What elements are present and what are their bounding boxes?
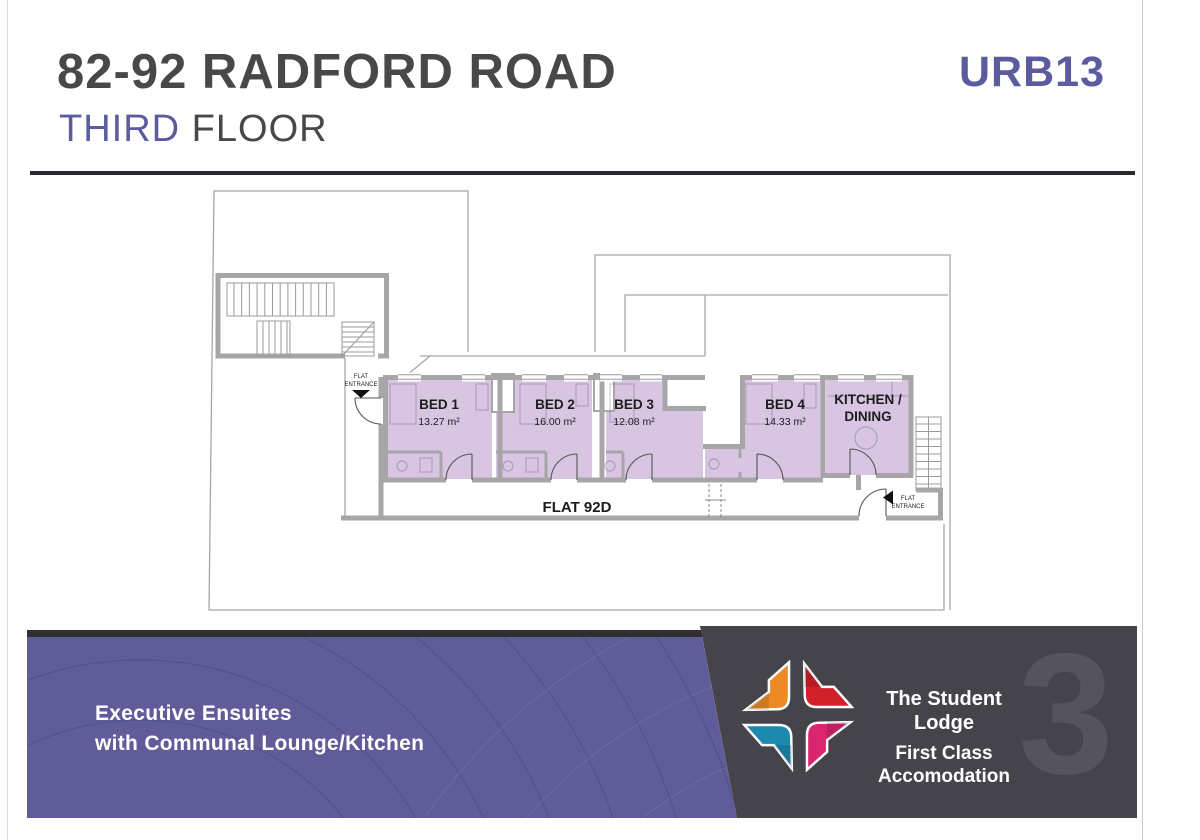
entrance-left-label: FLAT	[354, 374, 369, 380]
stairwell-right	[916, 417, 941, 490]
brand-text: The Student Lodge First Class Accomodati…	[858, 687, 1030, 788]
entrance-right-label: FLAT	[901, 496, 916, 502]
room-label-bed4: BED 4	[765, 397, 805, 412]
brand-tagline: First Class Accomodation	[858, 742, 1030, 788]
entrance-arrow-down-icon	[352, 390, 370, 398]
banner-line2: with Communal Lounge/Kitchen	[95, 729, 424, 759]
page-number: 3	[1018, 634, 1114, 794]
banner-line1: Executive Ensuites	[95, 699, 424, 729]
stairwell-left	[216, 273, 390, 359]
room-label-bed1: BED 1	[419, 397, 459, 412]
room-label-bed3: BED 3	[614, 397, 654, 412]
student-lodge-logo-icon	[742, 660, 854, 772]
brand-name: The Student Lodge	[858, 687, 1030, 735]
banner-text: Executive Ensuites with Communal Lounge/…	[95, 699, 424, 759]
room-area-bed1: 13.27 m²	[418, 416, 460, 428]
banner-top-strip	[27, 630, 710, 637]
document-page: 82-92 RADFORD ROAD THIRD FLOOR URB13	[0, 0, 1200, 840]
room-area-bed4: 14.33 m²	[764, 416, 806, 428]
flat-label: FLAT 92D	[543, 499, 612, 516]
hall-dashed-lines	[705, 484, 726, 517]
room-area-bed2: 16.00 m²	[534, 416, 576, 428]
room-label-bed2: BED 2	[535, 397, 575, 412]
room-area-bed3: 12.08 m²	[613, 416, 655, 428]
room-label-kitchen: KITCHEN /	[834, 392, 902, 407]
room-label-dining: DINING	[844, 409, 891, 424]
svg-text:ENTRANCE: ENTRANCE	[344, 382, 377, 388]
room-bed-4	[742, 379, 823, 479]
svg-text:ENTRANCE: ENTRANCE	[891, 504, 924, 510]
entrance-arrow-left-icon	[883, 491, 893, 505]
